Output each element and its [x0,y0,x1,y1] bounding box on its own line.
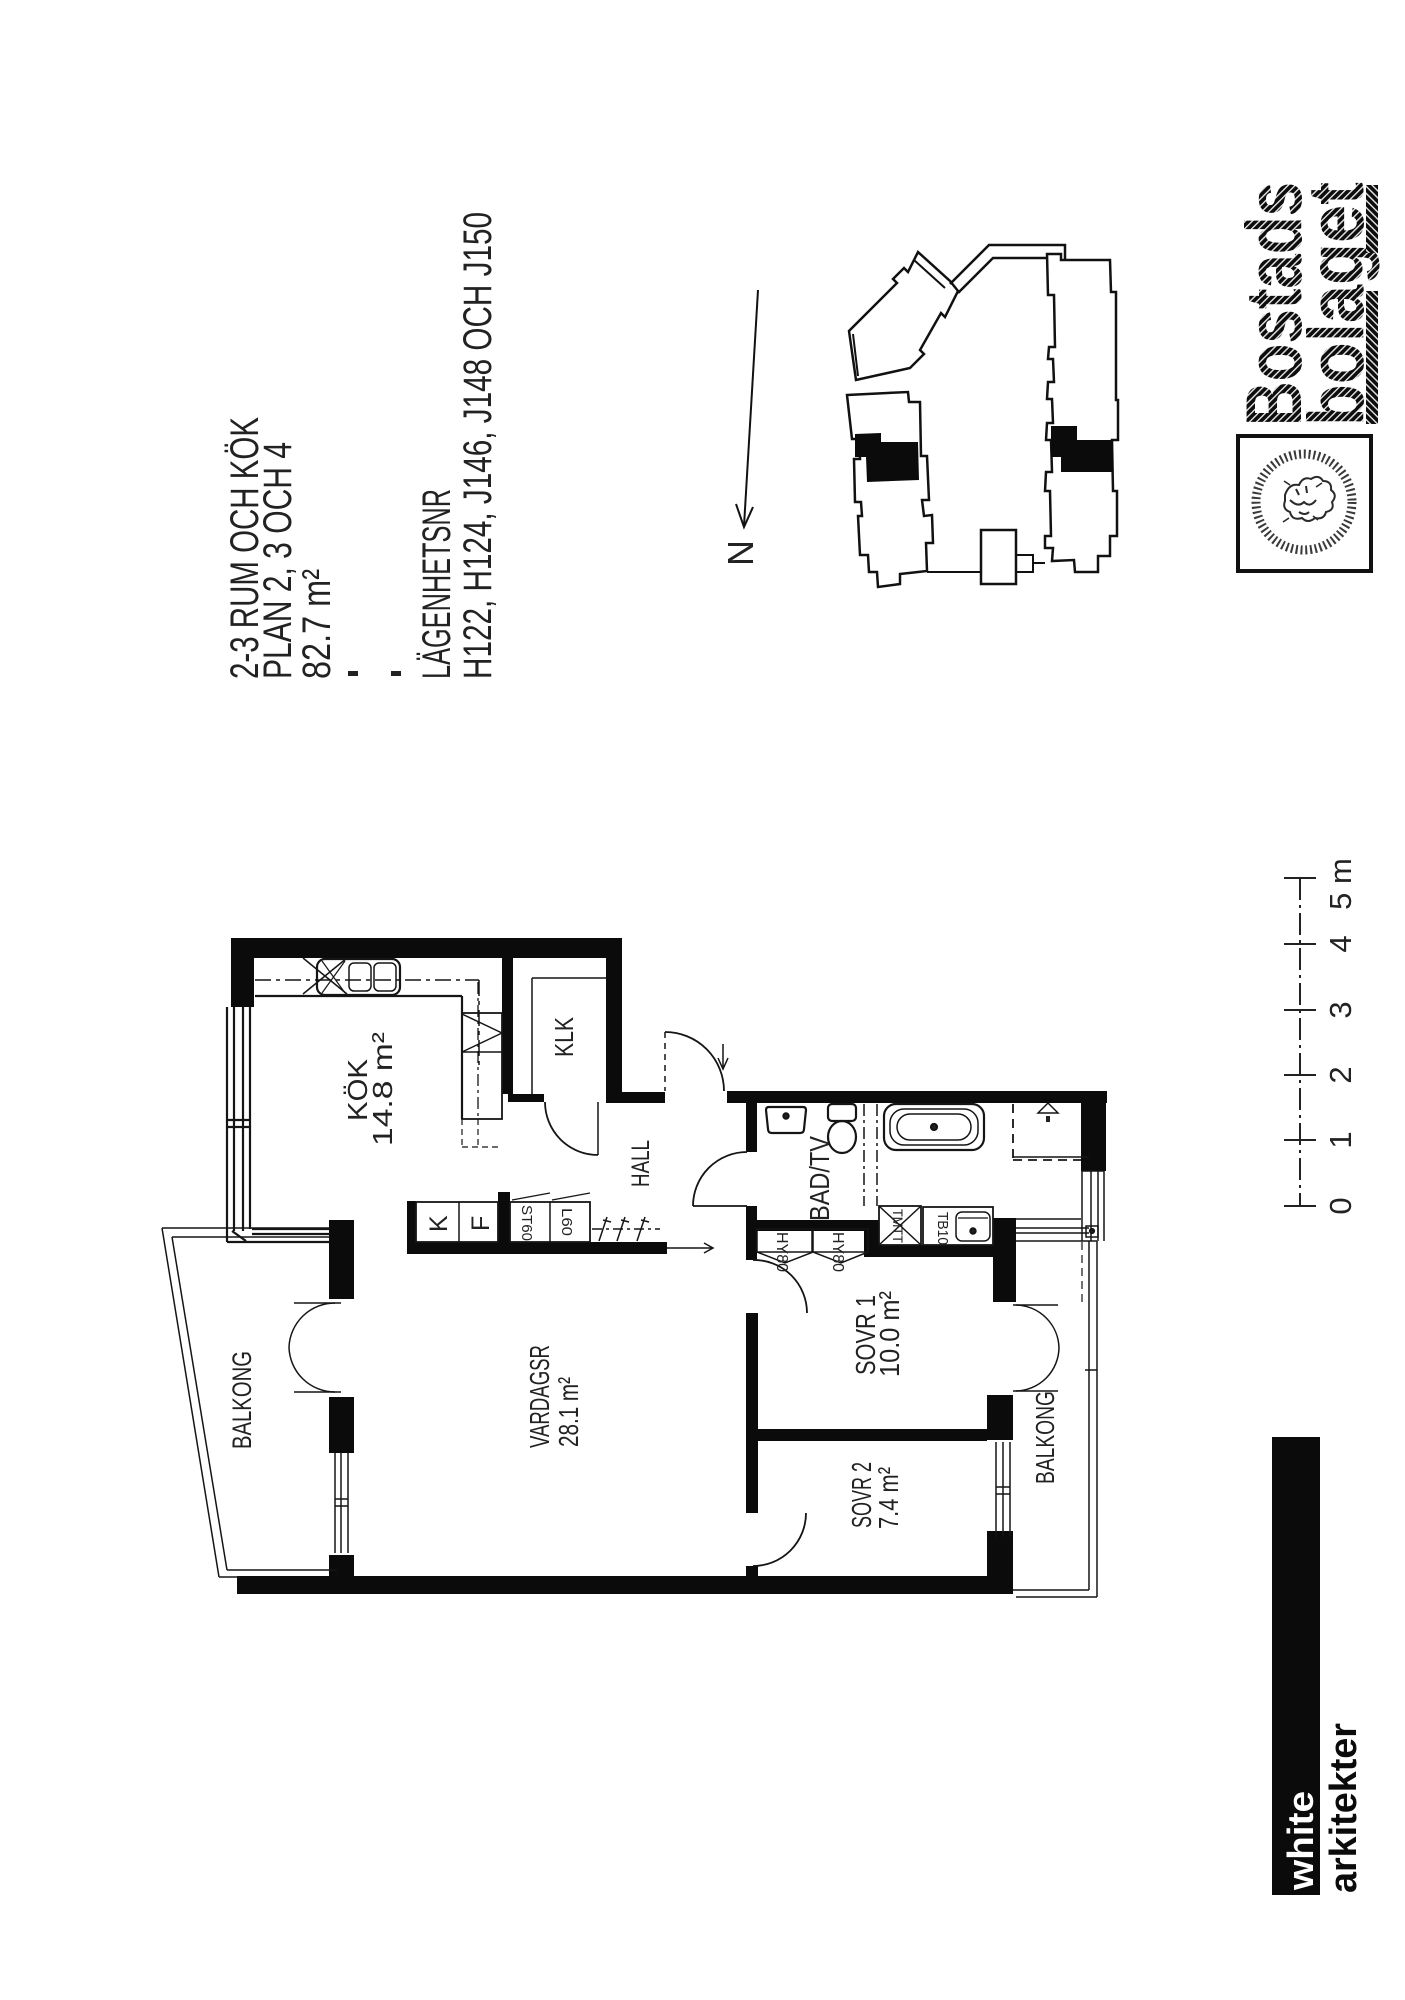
svg-text:HY80: HY80 [829,1232,846,1272]
svg-text:TMTT: TMTT [890,1209,906,1243]
svg-text:7.4 m²: 7.4 m² [873,1467,904,1529]
svg-text:arkitekter: arkitekter [1323,1723,1365,1893]
svg-text:K: K [425,1215,453,1232]
svg-text:HALL: HALL [627,1140,655,1187]
svg-text:10.0 m²: 10.0 m² [874,1291,905,1377]
svg-text:L60: L60 [558,1208,575,1236]
svg-text:white: white [1280,1791,1321,1891]
svg-text:HY80: HY80 [773,1232,790,1272]
svg-text:4: 4 [1323,935,1358,952]
svg-text:1: 1 [1323,1131,1358,1148]
svg-text:BALKONG: BALKONG [1030,1391,1060,1484]
svg-text:ST60: ST60 [518,1205,535,1241]
svg-text:0: 0 [1323,1197,1358,1214]
svg-text:VARDAGSR: VARDAGSR [524,1345,555,1448]
svg-text:KLK: KLK [549,1016,579,1057]
svg-text:PLAN 2, 3 OCH 4: PLAN 2, 3 OCH 4 [256,442,300,679]
svg-text:BALKONG: BALKONG [227,1351,257,1449]
svg-text:82.7 m²: 82.7 m² [295,569,339,679]
svg-text:28.1 m²: 28.1 m² [553,1377,584,1447]
svg-text:F: F [467,1216,495,1231]
svg-text:LÄGENHETSNR: LÄGENHETSNR [415,489,459,679]
svg-text:2: 2 [1323,1066,1358,1083]
svg-text:TB10: TB10 [934,1212,951,1245]
svg-text:3: 3 [1323,1001,1358,1018]
svg-text:H122, H124, J146, J148 OCH J15: H122, H124, J146, J148 OCH J150 [456,212,500,679]
svg-text:5 m: 5 m [1323,858,1358,910]
svg-text:N: N [720,540,761,566]
svg-text:BAD/TV: BAD/TV [804,1136,835,1221]
svg-text:14.8 m²: 14.8 m² [367,1032,398,1146]
